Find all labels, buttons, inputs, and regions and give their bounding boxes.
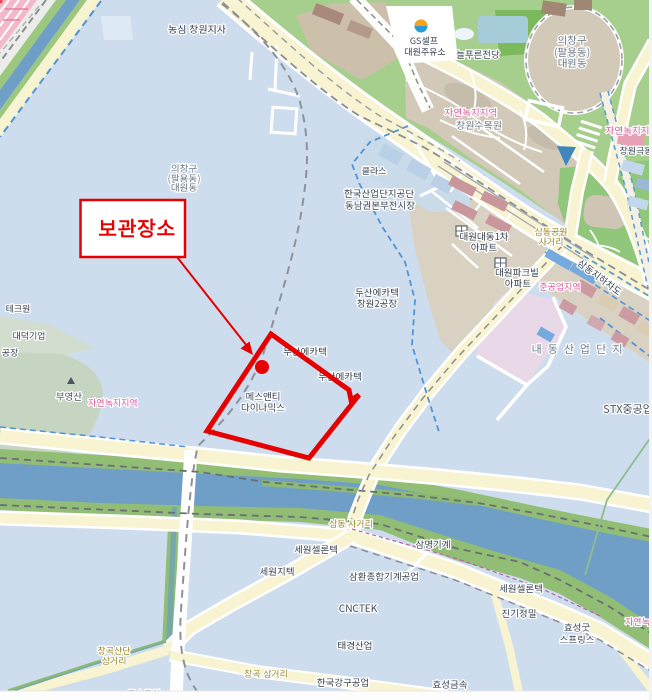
svg-text:삼거리: 삼거리: [102, 654, 127, 667]
svg-text:대원동: 대원동: [171, 180, 197, 194]
svg-text:창곡 삼거리: 창곡 삼거리: [244, 667, 288, 680]
svg-text:삼동 사거리: 삼동 사거리: [329, 517, 373, 530]
svg-text:부영산: 부영산: [56, 389, 82, 403]
svg-text:자연녹지지역: 자연녹지지역: [88, 396, 138, 409]
svg-text:세원셀론텍: 세원셀론텍: [294, 542, 338, 556]
svg-text:테크원: 테크원: [6, 302, 31, 315]
svg-text:준공업지역: 준공업지역: [539, 280, 580, 293]
svg-text:내동산업단지: 내동산업단지: [532, 341, 629, 357]
svg-text:공장: 공장: [2, 346, 19, 359]
svg-text:늘푸른전당: 늘푸른전당: [456, 47, 500, 61]
svg-text:진기정밀: 진기정밀: [502, 606, 537, 620]
svg-text:대원주유소: 대원주유소: [404, 45, 446, 58]
svg-text:CNCTEK: CNCTEK: [339, 600, 378, 615]
svg-text:효성금속: 효성금속: [433, 677, 468, 691]
svg-text:한국강구공업: 한국강구공업: [317, 675, 369, 689]
svg-text:자연녹지지역: 자연녹지지역: [605, 123, 652, 137]
svg-text:농심 창원지사: 농심 창원지사: [168, 21, 227, 36]
svg-text:사거리: 사거리: [539, 235, 564, 248]
svg-text:대원동: 대원동: [558, 56, 587, 71]
svg-text:창원극동: 창원극동: [619, 144, 652, 157]
svg-text:세원셀론텍: 세원셀론텍: [499, 581, 543, 595]
svg-text:세원지텍: 세원지텍: [260, 564, 295, 578]
svg-text:아파트: 아파트: [471, 240, 497, 254]
svg-text:삼환종합기계공업: 삼환종합기계공업: [349, 569, 419, 583]
svg-text:대덕기업: 대덕기업: [12, 329, 45, 342]
svg-text:STX중공업: STX중공업: [603, 401, 652, 417]
svg-text:동남권본부전시장: 동남권본부전시장: [345, 198, 415, 212]
svg-text:스프링스: 스프링스: [560, 632, 595, 646]
svg-text:클라스: 클라스: [362, 164, 387, 177]
svg-text:보관장소: 보관장소: [98, 212, 175, 242]
svg-text:창원수목원: 창원수목원: [456, 117, 502, 132]
svg-text:창원2공장: 창원2공장: [357, 296, 397, 310]
svg-text:다이나믹스: 다이나믹스: [241, 400, 285, 414]
svg-text:아파트: 아파트: [505, 276, 531, 290]
svg-text:자연녹지지역: 자연녹지지역: [625, 615, 652, 628]
svg-text:삼명기계: 삼명기계: [416, 537, 451, 551]
svg-text:태경산업: 태경산업: [338, 638, 373, 652]
